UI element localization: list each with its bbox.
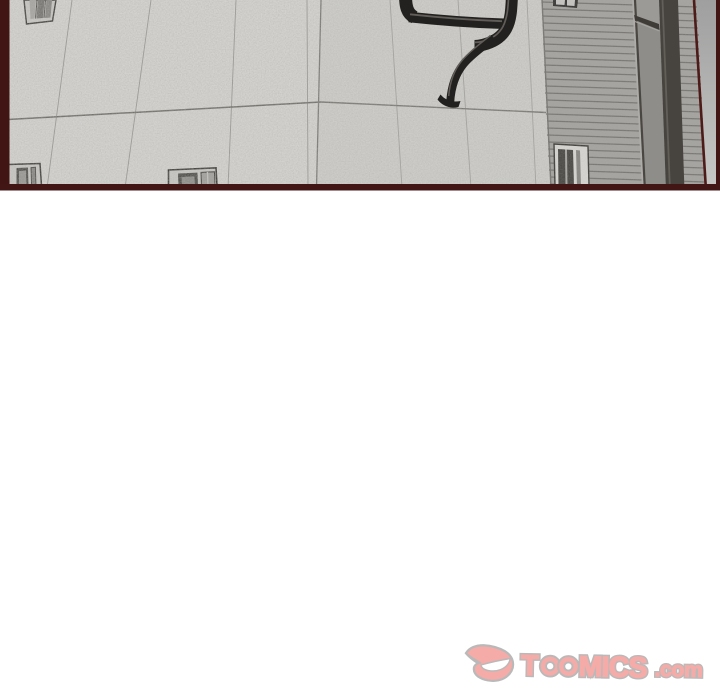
svg-text:.com: .com xyxy=(654,658,702,682)
svg-text:MICS: MICS xyxy=(578,651,647,684)
svg-text:T: T xyxy=(521,650,540,682)
